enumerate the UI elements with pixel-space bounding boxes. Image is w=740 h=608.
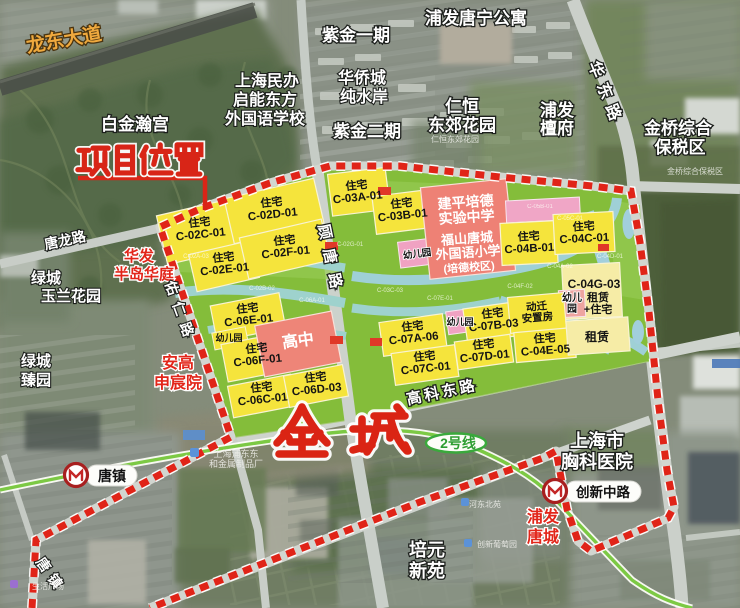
svg-text:C-07E-01: C-07E-01 [427,296,453,302]
svg-text:+住宅: +住宅 [584,302,612,316]
svg-text:纯水岸: 纯水岸 [340,87,388,106]
svg-text:和金属制品厂: 和金属制品厂 [209,458,263,469]
svg-text:培元: 培元 [409,539,445,560]
svg-text:上海市: 上海市 [570,430,624,451]
svg-text:启能东方: 启能东方 [233,90,297,109]
svg-text:申宸院: 申宸院 [154,373,202,392]
svg-text:唐城: 唐城 [527,527,559,546]
svg-text:浦发: 浦发 [540,100,575,120]
svg-text:创新葡萄园: 创新葡萄园 [477,539,517,549]
svg-text:生活广场: 生活广场 [32,581,64,591]
svg-text:幼儿园: 幼儿园 [446,316,473,327]
svg-text:仁恒东郊花园: 仁恒东郊花园 [431,134,479,144]
svg-text:幼儿: 幼儿 [562,291,582,304]
svg-text:租赁: 租赁 [587,290,609,304]
svg-text:臻园: 臻园 [21,371,51,389]
svg-text:胸科医院: 胸科医院 [561,451,633,472]
svg-text:住宅: 住宅 [517,228,540,243]
svg-text:园: 园 [567,303,577,315]
svg-text:C-05B-01: C-05B-01 [527,204,553,210]
svg-text:上海民办: 上海民办 [235,71,299,90]
svg-text:华发: 华发 [124,247,155,265]
svg-text:金桥综合保税区: 金桥综合保税区 [667,166,723,176]
svg-text:C-05C-01: C-05C-01 [557,216,584,222]
svg-text:C-02G-01: C-02G-01 [337,242,364,248]
svg-text:住宅: 住宅 [533,330,556,346]
svg-text:保税区: 保税区 [654,137,706,157]
svg-text:金桥综合: 金桥综合 [643,118,713,138]
svg-text:东郊花园: 东郊花园 [428,115,496,135]
svg-text:绿城: 绿城 [21,352,51,370]
svg-text:C-06A-01: C-06A-01 [299,298,325,304]
svg-text:C-04A-02: C-04A-02 [547,264,573,270]
svg-text:幼儿园: 幼儿园 [215,332,242,343]
svg-text:玉兰花园: 玉兰花园 [41,287,101,305]
svg-text:安高: 安高 [162,353,194,372]
svg-text:创新中路: 创新中路 [575,484,630,500]
svg-text:C-04D-01: C-04D-01 [597,254,624,260]
svg-text:紫金一期: 紫金一期 [322,25,390,45]
svg-text:紫金二期: 紫金二期 [333,121,401,141]
svg-text:绿城: 绿城 [31,269,61,287]
svg-text:C-03C-03: C-03C-03 [377,288,404,294]
svg-text:白金瀚宫: 白金瀚宫 [101,114,169,134]
svg-text:华侨城: 华侨城 [338,68,386,87]
svg-text:C-02A-03: C-02A-03 [183,254,209,260]
svg-text:C-04F-02: C-04F-02 [507,284,533,290]
svg-text:新苑: 新苑 [409,560,445,581]
svg-text:安置房: 安置房 [521,310,554,326]
svg-text:上海浦东东: 上海浦东东 [213,448,258,459]
svg-text:半岛华庭: 半岛华庭 [114,265,175,283]
svg-text:C-02B-02: C-02B-02 [249,286,275,292]
svg-text:浦发: 浦发 [527,507,560,526]
svg-text:唐镇: 唐镇 [98,468,126,484]
svg-text:浦发唐宁公寓: 浦发唐宁公寓 [425,8,527,28]
svg-text:外国语学校: 外国语学校 [224,109,306,128]
svg-text:仁恒: 仁恒 [445,96,479,116]
svg-text:租赁: 租赁 [585,329,609,344]
svg-text:C-04G-03: C-04G-03 [568,277,621,291]
svg-text:檀府: 檀府 [540,118,574,138]
svg-text:2号线: 2号线 [440,435,476,451]
svg-text:河东北苑: 河东北苑 [469,499,501,509]
